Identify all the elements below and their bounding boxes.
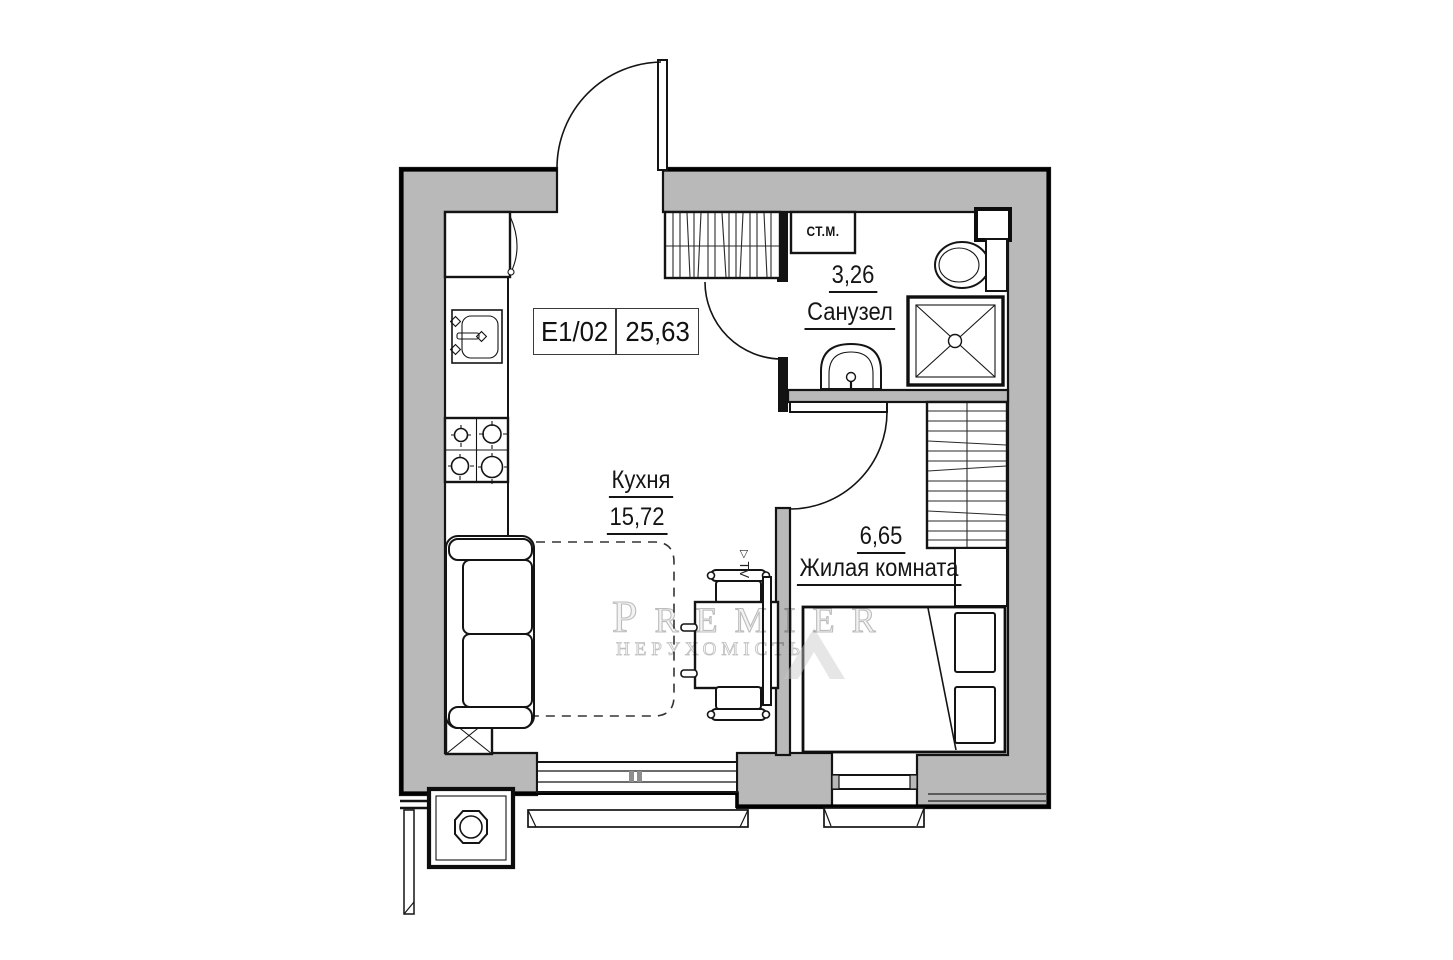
unit-total-area: 25,63 (620, 309, 695, 354)
living-room-name: Жилая комната (797, 554, 961, 583)
watermark-brand: PREMIER (612, 590, 893, 643)
tv-marker-icon: ▷ (738, 550, 751, 558)
unit-info-box: E1/02 25,63 (533, 308, 699, 355)
unit-code: E1/02 (537, 309, 612, 354)
kitchen-area: 15,72 (607, 503, 667, 532)
tv-label: ▷ TV (737, 550, 752, 578)
tv-text: TV (737, 561, 752, 578)
kitchen-name: Кухня (609, 466, 673, 495)
unit-box-divider (615, 309, 617, 354)
washing-machine-label: СТ.М. (807, 224, 840, 239)
watermark-tagline: НЕРУХОМІСТЬ (616, 639, 805, 661)
bathroom-area: 3,26 (829, 261, 877, 290)
bathroom-name: Санузел (805, 298, 896, 327)
floor-plan: E1/02 25,63 СТ.М. 3,26 Санузел Кухня 15,… (0, 0, 1453, 960)
living-room-area: 6,65 (857, 522, 905, 551)
label-layer: E1/02 25,63 СТ.М. 3,26 Санузел Кухня 15,… (0, 0, 1453, 960)
